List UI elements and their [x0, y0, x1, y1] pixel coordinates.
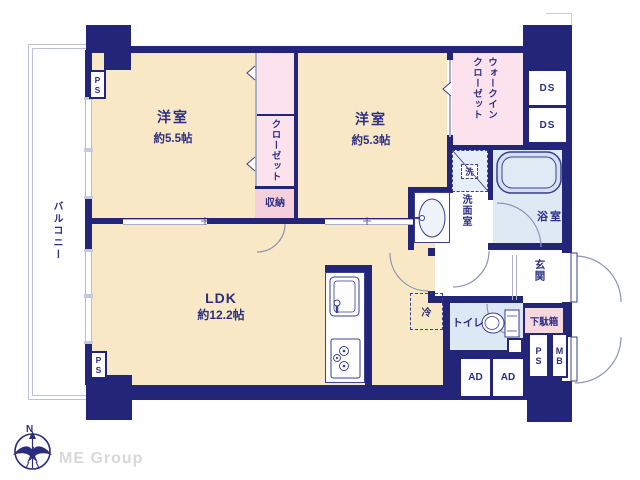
slide-mark: [201, 217, 209, 225]
bedroom2-size-text: 約5.3帖: [352, 135, 391, 147]
toilet-label-text: トイレ: [452, 317, 484, 329]
washroom-label-text: 洗面室: [460, 194, 471, 227]
ldk-size-text: 約12.2帖: [197, 308, 244, 322]
closet-door-chevron: [247, 157, 255, 171]
bedroom2-size: 約5.3帖: [321, 135, 421, 148]
storage-door-arc: [257, 224, 285, 252]
bathroom-label-text: 浴室: [537, 211, 563, 223]
balcony-label-text: バルコニー: [51, 201, 62, 261]
bathroom-label: 浴室: [520, 211, 580, 223]
wic-label: ウォークイン クローゼット: [469, 57, 514, 120]
bedroom1-name-text: 洋室: [157, 109, 189, 125]
bedroom1-size-text: 約5.5帖: [154, 133, 193, 145]
closet-label-text: クローゼット: [269, 119, 280, 182]
bathroom-door-arc: [497, 203, 541, 247]
logo-text-inner: ME Group: [59, 450, 143, 467]
burner-dot: [343, 350, 346, 353]
bedroom2-name-text: 洋室: [355, 111, 387, 127]
slide-mark: [363, 217, 371, 225]
bathtub-inner: [502, 157, 556, 188]
closet-label: クローゼット: [269, 119, 279, 182]
compass-north-text: N: [26, 424, 33, 435]
logo-text: ME Group: [59, 450, 143, 468]
mb-door-arc: [575, 337, 621, 383]
toilet-tank-icon: [505, 310, 519, 337]
fixtures-layer: [0, 0, 640, 480]
entrance-label-text: 玄関: [534, 259, 546, 282]
basin-faucet-knob: [420, 216, 425, 221]
entrance-door-arc: [577, 256, 621, 302]
entrance-door-leaf: [571, 253, 577, 302]
bedroom2-name: 洋室: [321, 112, 421, 127]
floor-plan: 収納 PS: [0, 0, 640, 480]
burner-dot: [343, 365, 346, 368]
stove-icon: [331, 339, 360, 378]
ldk-name-text: LDK: [205, 290, 237, 306]
toilet-label: トイレ: [445, 318, 491, 330]
bedroom1-size: 約5.5帖: [123, 133, 223, 146]
wic-door-chevron: [443, 82, 451, 96]
compass-north-label: N: [26, 424, 33, 435]
ldk-size: 約12.2帖: [171, 309, 271, 322]
ldk-name: LDK: [171, 291, 271, 306]
washroom-door-arc: [453, 251, 489, 287]
kitchen-faucet-knob: [334, 300, 340, 306]
bedroom1-name: 洋室: [123, 110, 223, 125]
ldk-door-arc: [390, 253, 428, 291]
wic-label-text: ウォークイン クローゼット: [471, 57, 497, 120]
closet-door-chevron: [247, 66, 255, 80]
laundry-diagonal: [453, 151, 487, 190]
burner-dot: [336, 357, 338, 359]
washroom-label: 洗面室: [460, 194, 471, 227]
balcony-label: バルコニー: [51, 201, 62, 261]
mb-door-leaf: [571, 337, 577, 381]
entrance-label: 玄関: [533, 259, 545, 282]
